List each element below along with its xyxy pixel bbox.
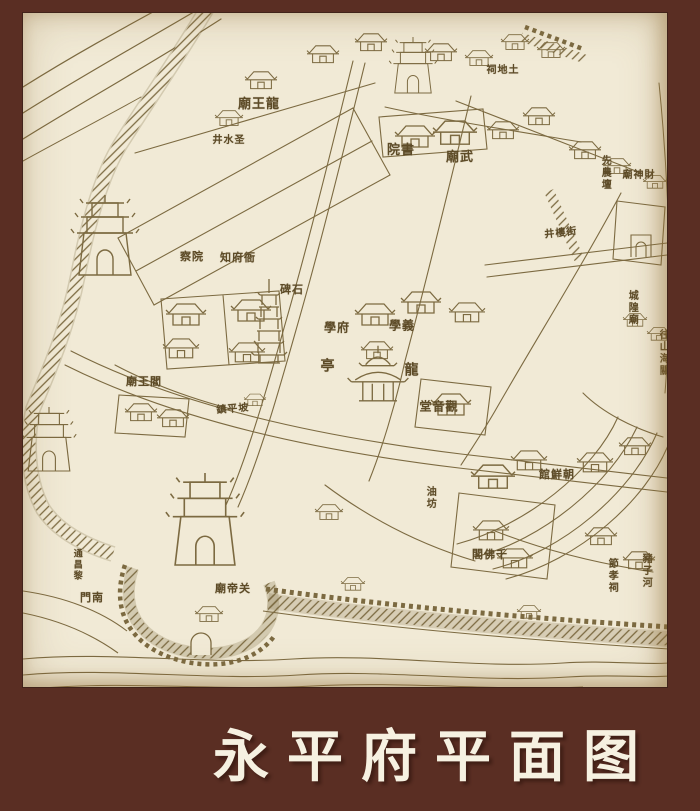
label-wumiao: 廟武 <box>446 151 474 165</box>
label-yanwangmiao: 廟王閻 <box>126 376 162 388</box>
label-wangshanhaiguan: 往山海關 <box>657 329 668 377</box>
label-jiexiaoci: 節孝祠 <box>606 558 617 594</box>
label-chayuan: 察院 <box>180 251 204 263</box>
map-frame: 廟王龍井水圣院書廟武廟神財祠地土察院知府衙碑石學府學義亭龍堂音觀廟王閻鎮平坡井樓… <box>0 0 700 811</box>
label-zhifuya: 知府衙 <box>220 252 256 264</box>
label-youfang: 油坊 <box>424 486 435 510</box>
label-tongchangli: 通昌黎 <box>71 549 80 582</box>
label-yixue: 學義 <box>389 320 415 333</box>
label-longwangmiao: 廟王龍 <box>238 98 280 112</box>
label-guanyintang: 堂音觀 <box>419 401 458 414</box>
label-guandimiao: 廟帝关 <box>215 583 251 595</box>
label-zhenpingpo: 鎮平坡 <box>216 403 250 416</box>
label-tudici: 祠地土 <box>487 66 520 77</box>
label-shengshuijing: 井水圣 <box>213 136 246 147</box>
label-chaoxianguan: 館鮮朝 <box>539 469 575 481</box>
label-shuyuan: 院書 <box>387 144 415 158</box>
label-ting: 亭 <box>321 360 336 375</box>
map-label-layer: 廟王龍井水圣院書廟武廟神財祠地土察院知府衙碑石學府學義亭龍堂音觀廟王閻鎮平坡井樓… <box>23 13 667 687</box>
label-jingloujie: 井樓街 <box>544 227 578 241</box>
map-canvas: 廟王龍井水圣院書廟武廟神財祠地土察院知府衙碑石學府學義亭龍堂音觀廟王閻鎮平坡井樓… <box>22 12 668 688</box>
label-caishenmiao: 廟神財 <box>623 171 656 182</box>
label-zhuzihe: 豬子河 <box>640 553 651 589</box>
label-xiannongtan: 先農壇 <box>599 155 610 191</box>
map-title: 永平府平面图 <box>0 693 700 811</box>
label-qianfoge: 閣佛千 <box>472 549 508 561</box>
label-shibei: 碑石 <box>280 284 304 296</box>
label-chenghuangmiao: 城隍廟 <box>626 290 637 326</box>
label-long: 龍 <box>405 364 420 379</box>
label-fuxue: 學府 <box>324 322 350 335</box>
label-nanmen: 門南 <box>80 592 104 604</box>
